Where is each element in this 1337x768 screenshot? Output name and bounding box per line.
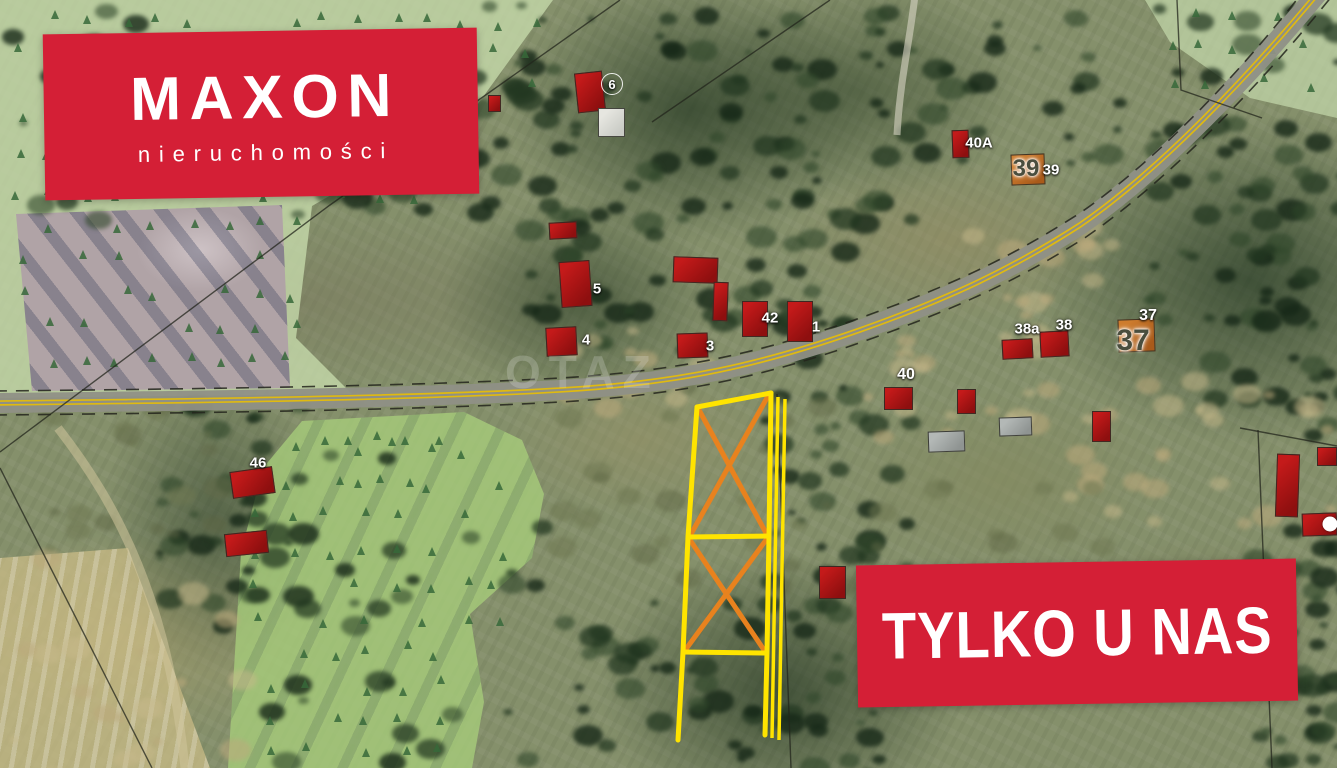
house-number-label: 40 [897,367,915,383]
house-number-label: 1 [812,320,820,335]
listing-image: 65434214038a383737393940A46 OTAZ MAXON n… [0,0,1337,768]
house-number-label: 39 [1013,157,1040,181]
watermark-text: OTAZ [505,345,659,399]
logo-title: MAXON [121,60,400,134]
house-number-label: 37 [1116,326,1149,356]
house-number-label: 5 [593,282,601,297]
house-number-label: 3 [706,339,714,354]
house-number-label: 38 [1056,318,1073,333]
logo-subtitle: nieruchomości [129,138,394,168]
house-number-label: 40A [965,136,993,151]
house-number-label [1323,517,1337,532]
house-number-label: 37 [1139,308,1157,324]
house-number-label: 39 [1043,163,1060,178]
house-number-label: 38a [1014,322,1039,337]
house-number-label: 6 [601,73,623,95]
maxon-logo-banner: MAXON nieruchomości [43,28,480,201]
house-number-label: 42 [762,311,779,326]
house-number-label: 46 [250,456,267,471]
exclusive-badge-banner: TYLKO U NAS [856,559,1298,708]
badge-text: TYLKO U NAS [881,592,1273,674]
